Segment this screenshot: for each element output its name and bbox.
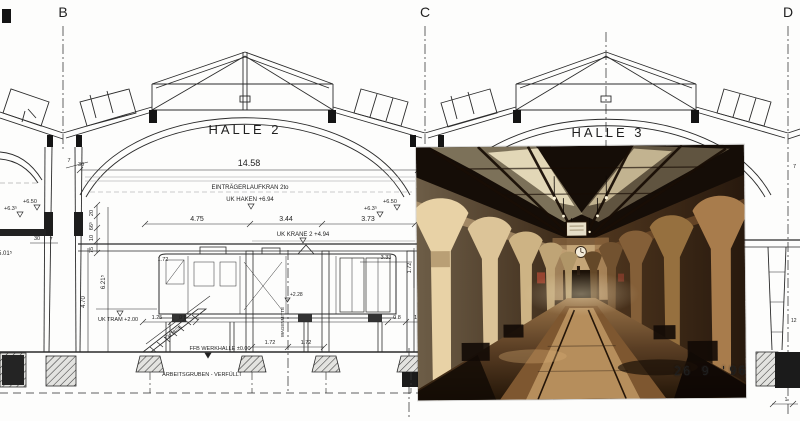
dim-172-right: 1.72 [407, 263, 413, 274]
stairs-label: 13x18/26 [163, 324, 183, 342]
crane-label: EINTRÄGERLAUFKRAN 2to [211, 184, 289, 191]
level-650-left: +6.50 [23, 199, 37, 205]
dim-7-top: 7 [67, 158, 70, 164]
dim-5015: 5.01⁵ [0, 250, 13, 257]
foundation [312, 356, 340, 372]
level-650-right: +6.50 [383, 199, 397, 205]
dim-bay1: 4.75 [190, 216, 204, 223]
grid-label-b: B [58, 4, 67, 20]
hanging-sign [567, 222, 587, 236]
dim-470: 4.70 [81, 296, 87, 308]
dim-12-right: 12 [791, 318, 797, 324]
column-d [744, 240, 800, 388]
dim-10: 10 [89, 235, 95, 241]
dim-bay2: 3.44 [279, 216, 293, 223]
beam-section [0, 229, 46, 236]
dim-bay3: 3.73 [361, 216, 375, 223]
dim-30-col: 30 [34, 236, 40, 242]
roof-truss [149, 52, 336, 123]
halle2-label: HALLE 2 [208, 122, 281, 137]
photo-inset: 26 9 '96 26 9 '96 [416, 145, 746, 401]
truss-foot [2, 9, 11, 23]
grid-labels: B C D [58, 4, 793, 20]
dim-125: 1.25 [152, 315, 163, 321]
tram-section [159, 245, 396, 322]
stairs [143, 296, 210, 352]
ffb-label: FFB WERKHALLE ±0.00 [189, 346, 250, 352]
halle1-roof-fragment [0, 9, 63, 183]
ffb-triangle [205, 353, 211, 358]
dim-7-right: 7 [793, 164, 796, 170]
foundation [136, 356, 164, 372]
blueprint-sheet: B C D [0, 0, 800, 421]
dim-665: 66⁵ [88, 222, 95, 230]
uk-krane: UK KRANE 2 +4.94 [277, 232, 330, 238]
level-635-left: +6.3⁵ [4, 205, 17, 212]
grid-label-d: D [783, 4, 793, 20]
pit-label: ARBEITSGRUBEN - VERFÜLLT [162, 371, 242, 378]
foundation [756, 352, 778, 386]
valley-b-structure [0, 135, 83, 352]
dim-172-cab: 1.72 [158, 257, 169, 263]
dim-75: 75 [89, 247, 95, 253]
axis-label: WAGENMITTE [280, 307, 285, 337]
uk-haken: UK HAKEN +6.94 [226, 197, 274, 203]
dim-1-right: 1 [785, 397, 788, 403]
uk-tram: UK TRAM +2.00 [98, 317, 138, 323]
level-635-right: +6.3⁵ [364, 205, 377, 212]
date-stamp: 26 9 '96 [674, 364, 746, 379]
column [322, 251, 329, 352]
foundation-block [775, 352, 800, 388]
dim-08-left: 0.8 [179, 315, 187, 321]
halle3-label: HALLE 3 [571, 125, 644, 140]
dim-172-b: 1.72 [301, 340, 312, 346]
dim-6215: 6.21⁵ [100, 274, 107, 289]
dim-20: 20 [89, 210, 95, 216]
dim-30-top: 30 [78, 162, 84, 168]
grid-label-c: C [420, 4, 430, 20]
skylight [3, 89, 49, 126]
foundation [238, 356, 266, 372]
dim-333: 3.33 [381, 255, 392, 261]
level-228: +2.28 [290, 292, 303, 298]
hall-interior-photo: 26 9 '96 26 9 '96 [416, 145, 746, 401]
dim-08-right: 0.8 [393, 315, 401, 321]
dim-span: 14.58 [238, 158, 261, 168]
foundation-block [46, 356, 76, 386]
dim-7-col: 7 [49, 237, 52, 243]
dim-172-a: 1.72 [265, 340, 276, 346]
